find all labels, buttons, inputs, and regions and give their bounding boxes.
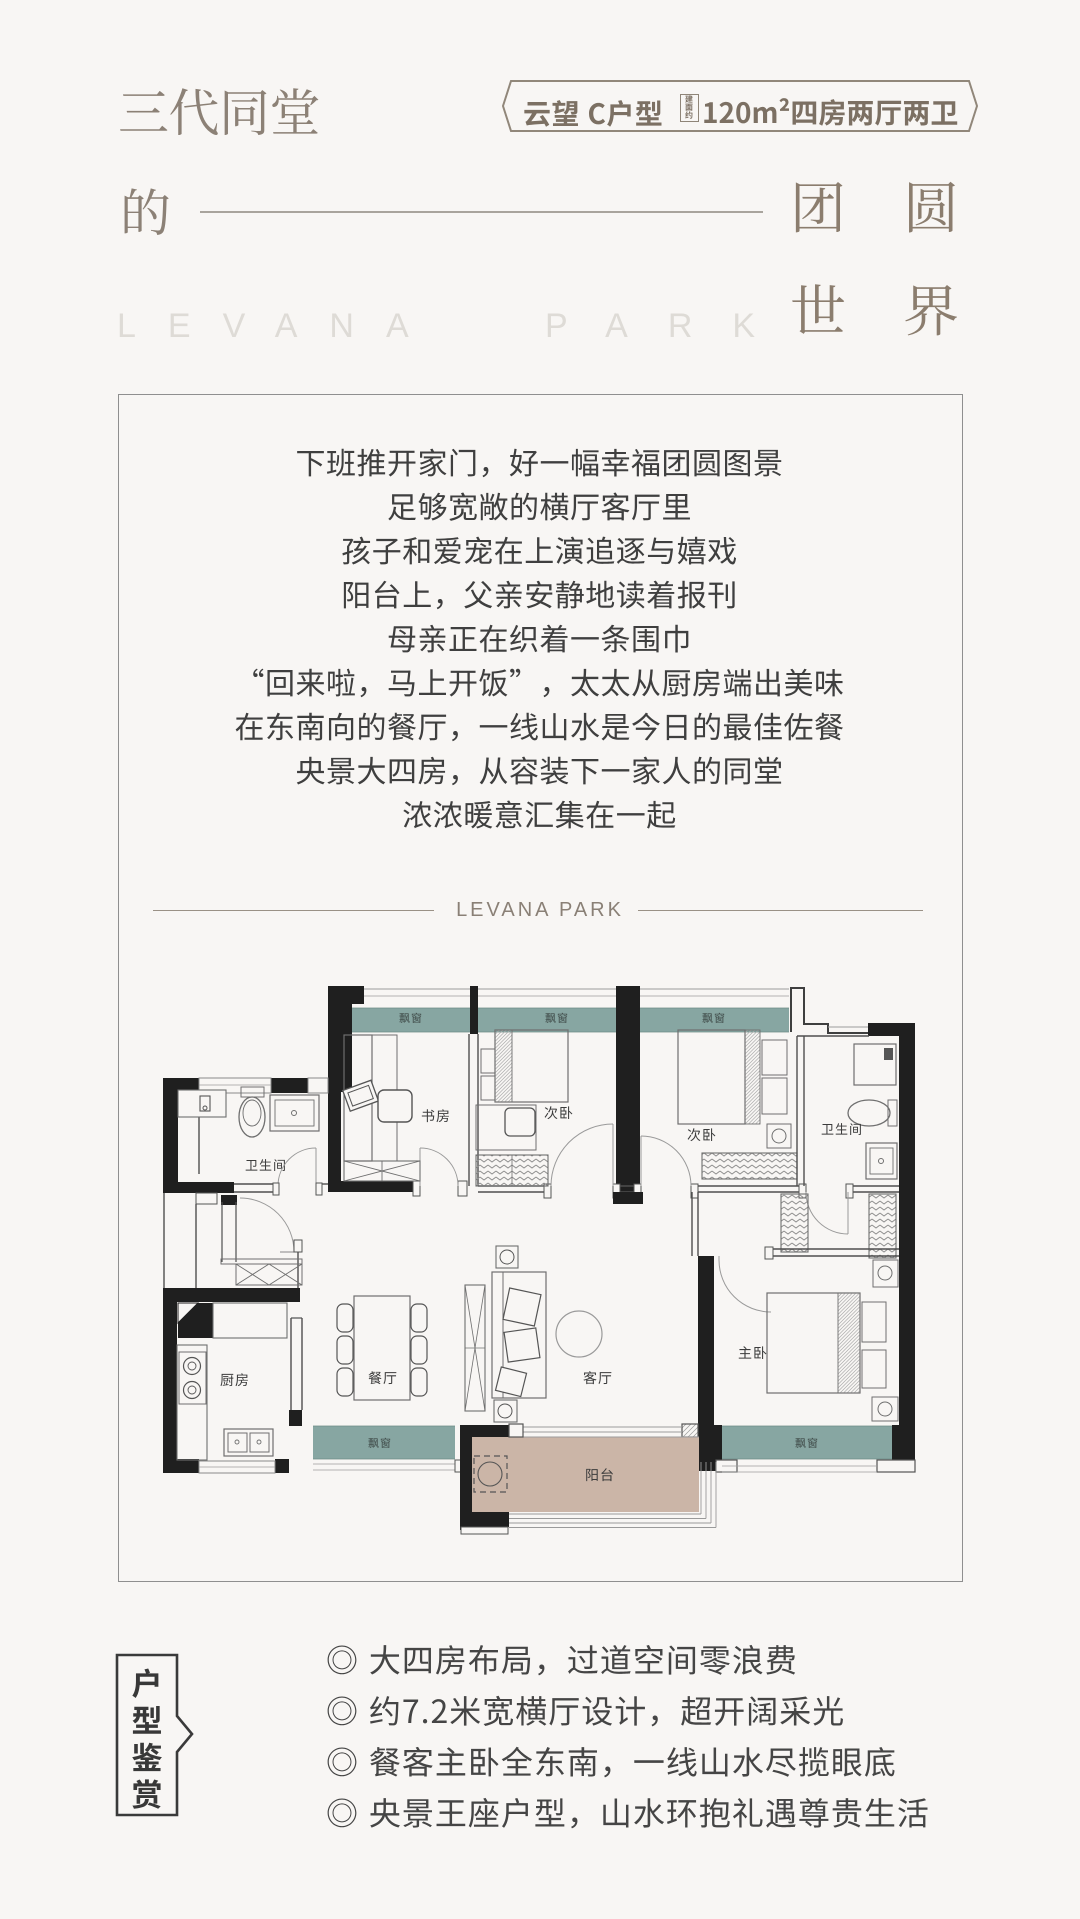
svg-text:书房: 书房: [421, 1106, 451, 1126]
svg-text:飘窗: 飘窗: [368, 1435, 392, 1451]
svg-text:客厅: 客厅: [583, 1368, 613, 1388]
svg-text:阳台: 阳台: [585, 1465, 615, 1485]
svg-text:厨房: 厨房: [220, 1370, 250, 1390]
svg-text:飘窗: 飘窗: [399, 1010, 423, 1026]
svg-text:飘窗: 飘窗: [795, 1435, 819, 1451]
svg-text:飘窗: 飘窗: [545, 1010, 569, 1026]
svg-text:次卧: 次卧: [687, 1125, 717, 1145]
svg-text:主卧: 主卧: [738, 1343, 768, 1363]
svg-text:卫生间: 卫生间: [821, 1119, 863, 1138]
svg-text:次卧: 次卧: [544, 1103, 574, 1123]
svg-text:飘窗: 飘窗: [702, 1010, 726, 1026]
svg-text:餐厅: 餐厅: [368, 1368, 398, 1388]
